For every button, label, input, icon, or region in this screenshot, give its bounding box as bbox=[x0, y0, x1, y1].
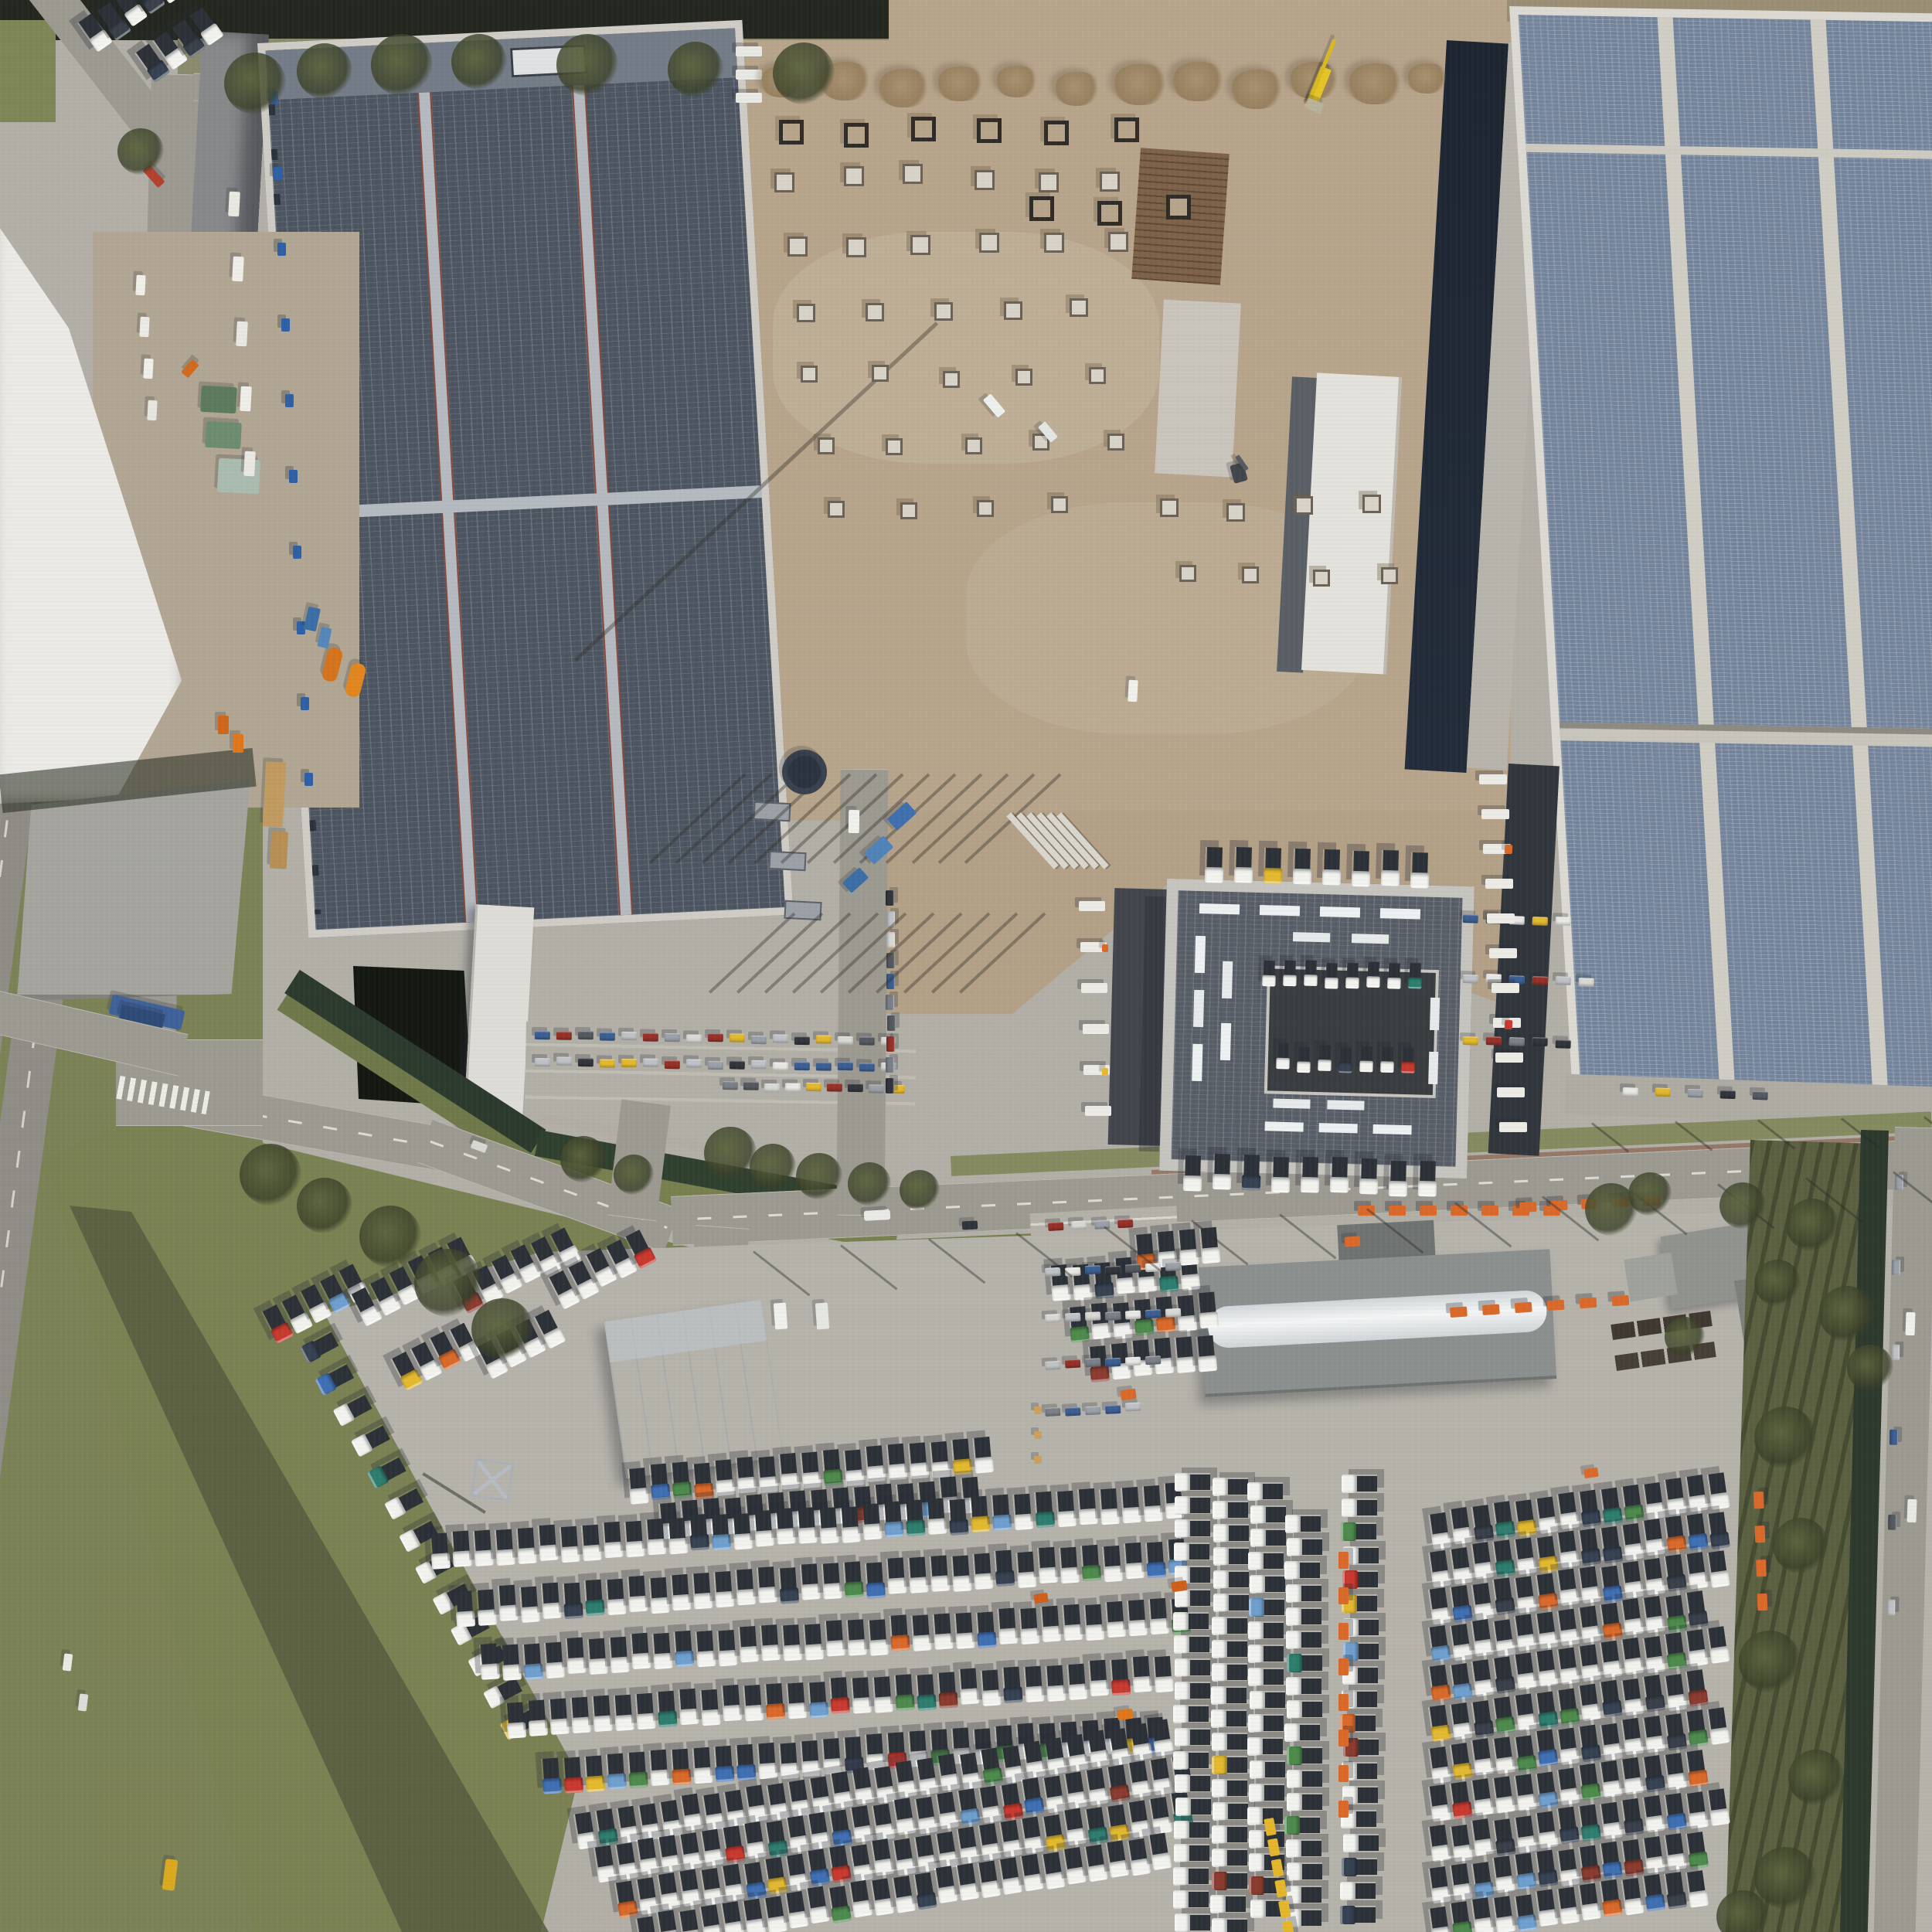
truck-cab bbox=[1453, 1844, 1474, 1862]
truck-cab bbox=[672, 1594, 691, 1611]
tree bbox=[240, 1144, 301, 1206]
truck-chassis bbox=[801, 1563, 818, 1585]
truck-cab bbox=[1042, 1625, 1061, 1642]
excavation-mound bbox=[1407, 63, 1447, 94]
truck bbox=[743, 1821, 767, 1859]
truck-chassis bbox=[546, 1642, 563, 1664]
truck bbox=[1536, 1536, 1559, 1573]
excavation-mound bbox=[1114, 64, 1168, 105]
truck bbox=[1600, 1565, 1623, 1603]
truck bbox=[628, 1468, 649, 1505]
truck-chassis bbox=[974, 1553, 991, 1575]
truck bbox=[951, 1438, 972, 1475]
truck-cab bbox=[1624, 1818, 1645, 1835]
truck-cab bbox=[737, 1477, 757, 1494]
truck-cab bbox=[1645, 1774, 1666, 1792]
truck bbox=[1685, 1870, 1709, 1908]
car bbox=[1532, 976, 1548, 985]
car bbox=[1556, 917, 1571, 926]
truck-cab bbox=[1517, 1713, 1538, 1731]
truck-cab bbox=[1581, 1548, 1602, 1566]
truck bbox=[930, 1441, 951, 1478]
truck bbox=[1600, 1640, 1623, 1678]
trailer bbox=[281, 318, 290, 332]
truck bbox=[1063, 1808, 1087, 1845]
truck-chassis bbox=[1687, 1870, 1706, 1893]
truck bbox=[1084, 1844, 1108, 1882]
truck bbox=[667, 1518, 688, 1555]
truck-cab bbox=[1212, 1640, 1227, 1658]
vehicle-or-object bbox=[1034, 1431, 1042, 1439]
truck-chassis bbox=[604, 1522, 621, 1543]
vehicle-or-object bbox=[1102, 1068, 1108, 1076]
truck-chassis bbox=[690, 1514, 707, 1536]
truck-cab bbox=[1100, 1509, 1120, 1526]
truck-cab bbox=[1211, 1686, 1226, 1705]
truck-cab bbox=[1046, 1757, 1067, 1776]
tree bbox=[371, 34, 433, 96]
truck-chassis bbox=[1189, 1498, 1210, 1513]
truck bbox=[1578, 1763, 1601, 1801]
truck bbox=[1175, 1519, 1210, 1538]
truck bbox=[1249, 1598, 1284, 1617]
truck-cab bbox=[783, 1645, 802, 1662]
truck bbox=[735, 1457, 757, 1494]
truck-cab bbox=[1287, 1654, 1302, 1672]
truck-cab bbox=[1248, 1714, 1264, 1733]
lamp-shadow bbox=[1757, 1119, 1795, 1149]
excavation-mound bbox=[1349, 63, 1403, 104]
truck bbox=[1174, 1821, 1209, 1839]
truck-chassis bbox=[628, 1576, 645, 1597]
truck-cab bbox=[1133, 1676, 1152, 1693]
truck-chassis bbox=[1228, 1572, 1249, 1587]
truck-chassis bbox=[615, 1695, 632, 1716]
truck-cab bbox=[1066, 1828, 1087, 1846]
truck-cab bbox=[1431, 1886, 1452, 1903]
truck-chassis bbox=[1125, 1543, 1142, 1564]
truck-chassis bbox=[1687, 1832, 1706, 1855]
vehicle-or-object bbox=[139, 317, 149, 338]
truck bbox=[1107, 1764, 1131, 1802]
truck-chassis bbox=[474, 1530, 492, 1552]
truck bbox=[1428, 1866, 1451, 1904]
truck-chassis bbox=[1189, 1660, 1210, 1675]
truck-cab bbox=[1155, 1676, 1174, 1693]
truck-chassis bbox=[1020, 1608, 1037, 1630]
foundation-pad bbox=[866, 303, 884, 321]
truck bbox=[999, 1819, 1023, 1857]
truck bbox=[765, 1820, 789, 1858]
truck-cab bbox=[1175, 1913, 1190, 1932]
truck bbox=[451, 1530, 472, 1567]
truck bbox=[657, 1872, 681, 1910]
truck bbox=[757, 1456, 778, 1493]
truck-chassis bbox=[1226, 1665, 1247, 1680]
truck-chassis bbox=[1665, 1713, 1684, 1736]
truck-cab bbox=[1174, 1821, 1189, 1839]
truck-chassis bbox=[1189, 1567, 1210, 1583]
truck-chassis bbox=[1644, 1755, 1662, 1778]
truck bbox=[1342, 1858, 1377, 1876]
truck bbox=[1248, 1552, 1284, 1570]
truck-cab bbox=[1517, 1596, 1538, 1614]
truck-cab bbox=[1213, 1524, 1229, 1543]
car bbox=[535, 1031, 550, 1039]
truck bbox=[843, 1449, 865, 1486]
truck-cab bbox=[1287, 1538, 1302, 1556]
truck-chassis bbox=[1104, 1546, 1121, 1567]
truck-chassis bbox=[1262, 1484, 1283, 1499]
truck-cab bbox=[798, 1527, 818, 1544]
truck-cab bbox=[1128, 1620, 1148, 1637]
foundation-pad bbox=[934, 302, 953, 321]
vehicle-or-object bbox=[228, 192, 240, 217]
truck bbox=[1196, 1335, 1217, 1372]
truck-cab bbox=[1304, 975, 1318, 986]
truck bbox=[757, 1566, 777, 1604]
car bbox=[1509, 1037, 1525, 1046]
truck bbox=[1343, 1642, 1379, 1661]
truck-chassis bbox=[952, 1438, 969, 1461]
truck-chassis bbox=[1284, 961, 1296, 976]
truck-chassis bbox=[1036, 1492, 1053, 1513]
truck-cab bbox=[1262, 975, 1276, 987]
truck-cab bbox=[1130, 1858, 1151, 1876]
truck-chassis bbox=[1558, 1569, 1577, 1592]
foundation-pad bbox=[846, 237, 866, 257]
truck bbox=[1557, 1688, 1580, 1726]
foundation-pad bbox=[910, 235, 930, 255]
truck bbox=[1428, 1784, 1451, 1822]
car bbox=[773, 1034, 788, 1043]
truck-cab bbox=[1247, 1737, 1263, 1756]
truck bbox=[671, 1749, 692, 1786]
truck-chassis bbox=[1356, 1596, 1377, 1611]
truck bbox=[1121, 1487, 1141, 1524]
truck bbox=[1085, 1768, 1109, 1806]
truck-chassis bbox=[896, 1674, 913, 1696]
truck-chassis bbox=[1358, 1740, 1379, 1755]
truck bbox=[1148, 1832, 1172, 1870]
truck-chassis bbox=[1665, 1793, 1684, 1816]
truck-cab bbox=[1624, 1543, 1645, 1560]
truck-cab bbox=[992, 1514, 1012, 1531]
truck-cab bbox=[746, 1882, 767, 1900]
truck-cab bbox=[1474, 1525, 1495, 1543]
truck-cab bbox=[780, 1587, 799, 1604]
truck-cab bbox=[1201, 1247, 1221, 1264]
truck-cab bbox=[1338, 1062, 1352, 1073]
truck bbox=[908, 1442, 930, 1479]
truck-chassis bbox=[1226, 1873, 1247, 1889]
truck-chassis bbox=[1644, 1558, 1662, 1581]
truck-chassis bbox=[823, 1738, 840, 1760]
truck-chassis bbox=[888, 1444, 905, 1466]
truck bbox=[1068, 1306, 1090, 1343]
truck bbox=[721, 1863, 745, 1901]
truck-chassis bbox=[1226, 1641, 1247, 1657]
foundation-pad bbox=[774, 172, 794, 192]
truck-cab bbox=[1173, 1890, 1189, 1909]
truck-chassis bbox=[651, 1577, 668, 1599]
truck-chassis bbox=[1515, 1499, 1534, 1522]
truck-chassis bbox=[1228, 1595, 1249, 1611]
truck-chassis bbox=[499, 1585, 516, 1607]
truck-cab bbox=[1538, 1631, 1559, 1649]
truck-chassis bbox=[1558, 1768, 1577, 1791]
truck-chassis bbox=[1188, 1892, 1209, 1907]
car bbox=[600, 1032, 615, 1040]
truck bbox=[800, 1563, 821, 1600]
truck bbox=[933, 1613, 954, 1650]
truck-cab bbox=[906, 1519, 925, 1536]
car bbox=[806, 1083, 821, 1091]
orange-machine bbox=[1338, 1694, 1349, 1711]
truck bbox=[1063, 1771, 1087, 1809]
truck bbox=[1578, 1605, 1601, 1643]
truck-cab bbox=[1495, 1597, 1516, 1615]
truck-chassis bbox=[1228, 1526, 1249, 1541]
truck-chassis bbox=[1301, 1748, 1322, 1764]
truck bbox=[821, 1449, 843, 1486]
truck bbox=[713, 1571, 734, 1608]
truck-cab bbox=[1495, 1796, 1516, 1814]
truck-chassis bbox=[1301, 1655, 1322, 1671]
truck-cab bbox=[1175, 1473, 1190, 1492]
truck-chassis bbox=[1473, 1862, 1492, 1885]
truck-chassis bbox=[1473, 1700, 1492, 1723]
orange-machine bbox=[1547, 1300, 1565, 1311]
truck-chassis bbox=[1263, 1716, 1284, 1731]
truck bbox=[1514, 1537, 1537, 1575]
foundation-pad bbox=[1160, 498, 1179, 517]
truck-cab bbox=[1285, 1515, 1301, 1533]
truck-cab bbox=[703, 1849, 724, 1867]
truck bbox=[351, 1424, 391, 1458]
truck-chassis bbox=[1263, 1623, 1284, 1638]
truck bbox=[367, 1456, 407, 1489]
truck-chassis bbox=[1227, 1804, 1248, 1819]
truck bbox=[1492, 1896, 1515, 1932]
truck bbox=[1149, 1797, 1173, 1835]
truck-cab bbox=[1213, 1570, 1229, 1589]
truck-chassis bbox=[831, 1677, 848, 1699]
truck-cab bbox=[1474, 1639, 1495, 1657]
truck bbox=[1043, 1775, 1066, 1813]
truck bbox=[1343, 1834, 1379, 1852]
truck-cab bbox=[1213, 1547, 1229, 1566]
truck-cab bbox=[651, 1483, 671, 1500]
truck-cab bbox=[650, 1597, 669, 1614]
truck-cab bbox=[888, 1464, 908, 1481]
truck-cab bbox=[1495, 1716, 1516, 1734]
truck-chassis bbox=[1665, 1833, 1684, 1856]
truck-chassis bbox=[1264, 1577, 1285, 1592]
truck bbox=[702, 1793, 726, 1831]
truck-chassis bbox=[594, 1696, 611, 1717]
truck-chassis bbox=[1265, 1530, 1286, 1546]
truck-cab bbox=[1249, 1784, 1264, 1802]
truck bbox=[760, 1624, 781, 1662]
truck-chassis bbox=[998, 1608, 1015, 1630]
truck bbox=[645, 1519, 666, 1556]
truck bbox=[716, 1630, 737, 1667]
truck-chassis bbox=[1264, 1600, 1284, 1615]
truck bbox=[997, 1607, 1018, 1645]
truck-chassis bbox=[1558, 1807, 1577, 1830]
truck bbox=[843, 1561, 864, 1598]
column-shadow bbox=[912, 774, 1009, 865]
truck-cab bbox=[848, 1639, 867, 1656]
truck bbox=[1556, 1568, 1580, 1606]
truck-cab bbox=[660, 1892, 681, 1910]
truck-chassis bbox=[629, 1468, 646, 1490]
truck bbox=[1175, 1473, 1210, 1492]
truck bbox=[1128, 1800, 1151, 1838]
truck-cab bbox=[1250, 1760, 1265, 1779]
truck bbox=[956, 1826, 980, 1864]
truck-cab bbox=[1113, 1322, 1133, 1339]
truck-cab bbox=[1079, 1509, 1098, 1526]
truck bbox=[1450, 1825, 1473, 1862]
truck-chassis bbox=[1273, 1157, 1289, 1179]
truck-cab bbox=[1199, 1311, 1219, 1328]
truck bbox=[1600, 1526, 1623, 1563]
truck-chassis bbox=[1060, 1547, 1077, 1569]
truck bbox=[592, 1696, 613, 1733]
truck bbox=[692, 1747, 713, 1784]
lamp-shadow bbox=[1675, 1121, 1713, 1151]
truck-cab bbox=[715, 1591, 734, 1608]
truck-chassis bbox=[1326, 963, 1338, 978]
trailer bbox=[736, 93, 762, 103]
truck-cab bbox=[597, 1865, 617, 1883]
truck bbox=[893, 1838, 917, 1876]
truck-cab bbox=[683, 1813, 704, 1832]
car bbox=[665, 1033, 680, 1042]
truck-cab bbox=[1560, 1906, 1580, 1924]
car bbox=[1688, 1089, 1703, 1098]
truck-chassis bbox=[1347, 963, 1359, 978]
truck-chassis bbox=[1537, 1811, 1556, 1834]
truck-chassis bbox=[1389, 963, 1400, 978]
truck bbox=[692, 1463, 714, 1500]
foundation-pad bbox=[1044, 233, 1064, 253]
truck bbox=[1287, 1538, 1322, 1556]
truck-chassis bbox=[766, 1683, 783, 1705]
truck bbox=[680, 1793, 704, 1831]
truck-cab bbox=[845, 1581, 864, 1598]
truck-cab bbox=[1689, 1852, 1709, 1869]
truck-cab bbox=[1359, 1061, 1373, 1073]
tree bbox=[668, 42, 723, 97]
truck-cab bbox=[949, 1519, 968, 1536]
truck-chassis bbox=[1189, 1730, 1210, 1745]
truck bbox=[1600, 1760, 1623, 1798]
truck bbox=[1174, 1543, 1209, 1561]
truck-cab bbox=[801, 1760, 821, 1777]
truck-cab bbox=[1090, 1366, 1110, 1383]
truck-chassis bbox=[1301, 1586, 1321, 1601]
truck bbox=[1234, 847, 1253, 883]
truck-chassis bbox=[1301, 1609, 1321, 1624]
truck bbox=[1111, 1302, 1133, 1339]
foundation-pad bbox=[979, 233, 999, 253]
truck-cab bbox=[1602, 1660, 1623, 1678]
truck-chassis bbox=[1189, 1776, 1210, 1791]
truck-cab bbox=[887, 1577, 906, 1594]
truck bbox=[1621, 1523, 1645, 1561]
truck-cab bbox=[1276, 1058, 1290, 1070]
truck-cab bbox=[1183, 1175, 1202, 1192]
car bbox=[838, 1062, 853, 1070]
truck bbox=[1301, 1157, 1320, 1193]
truck-chassis bbox=[755, 1510, 772, 1532]
truck-cab bbox=[1603, 1743, 1624, 1760]
foundation-pad bbox=[1114, 117, 1139, 142]
truck-cab bbox=[1325, 978, 1338, 989]
truck-cab bbox=[1175, 1658, 1190, 1677]
truck bbox=[785, 1853, 809, 1891]
truck bbox=[1212, 1733, 1247, 1751]
truck-cab bbox=[1474, 1758, 1495, 1776]
truck-chassis bbox=[1355, 1716, 1376, 1731]
tree bbox=[614, 1155, 654, 1195]
truck-chassis bbox=[1226, 1827, 1247, 1842]
truck-chassis bbox=[611, 1637, 628, 1658]
truck-chassis bbox=[1580, 1804, 1598, 1828]
car bbox=[643, 1058, 658, 1066]
truck bbox=[1325, 963, 1338, 989]
tree bbox=[1819, 1286, 1875, 1342]
truck-cab bbox=[1234, 867, 1253, 883]
truck-chassis bbox=[651, 1464, 668, 1486]
truck-cab bbox=[736, 1764, 756, 1781]
truck-cab bbox=[1144, 1505, 1163, 1522]
trailer bbox=[293, 546, 301, 559]
truck-chassis bbox=[962, 1477, 979, 1499]
truck-cab bbox=[1666, 1574, 1687, 1592]
truck-chassis bbox=[1277, 1043, 1289, 1059]
truck-chassis bbox=[1382, 1047, 1393, 1063]
truck bbox=[1621, 1798, 1644, 1836]
lamp-shadow bbox=[1279, 1214, 1336, 1260]
truck-chassis bbox=[1644, 1874, 1662, 1897]
truck bbox=[1450, 1624, 1473, 1662]
truck bbox=[1621, 1561, 1645, 1599]
truck bbox=[1212, 1872, 1247, 1890]
truck-chassis bbox=[1264, 1785, 1284, 1801]
truck-chassis bbox=[1179, 1229, 1196, 1251]
truck-cab bbox=[1070, 1326, 1090, 1343]
truck-cab bbox=[1602, 1780, 1623, 1798]
foundation-pad bbox=[977, 500, 994, 517]
truck bbox=[1642, 1675, 1665, 1713]
truck-cab bbox=[1709, 1727, 1730, 1745]
truck bbox=[679, 1909, 702, 1932]
truck-chassis bbox=[758, 1743, 775, 1764]
truck-cab bbox=[1212, 1849, 1227, 1867]
truck-cab bbox=[1108, 1860, 1129, 1879]
car bbox=[1623, 1087, 1638, 1097]
truck-cab bbox=[1175, 1519, 1190, 1538]
truck-cab bbox=[787, 1702, 807, 1719]
truck bbox=[1286, 1607, 1321, 1626]
foundation-pad bbox=[1015, 369, 1032, 386]
truck-chassis bbox=[744, 1685, 761, 1706]
truck-cab bbox=[1173, 1867, 1189, 1886]
